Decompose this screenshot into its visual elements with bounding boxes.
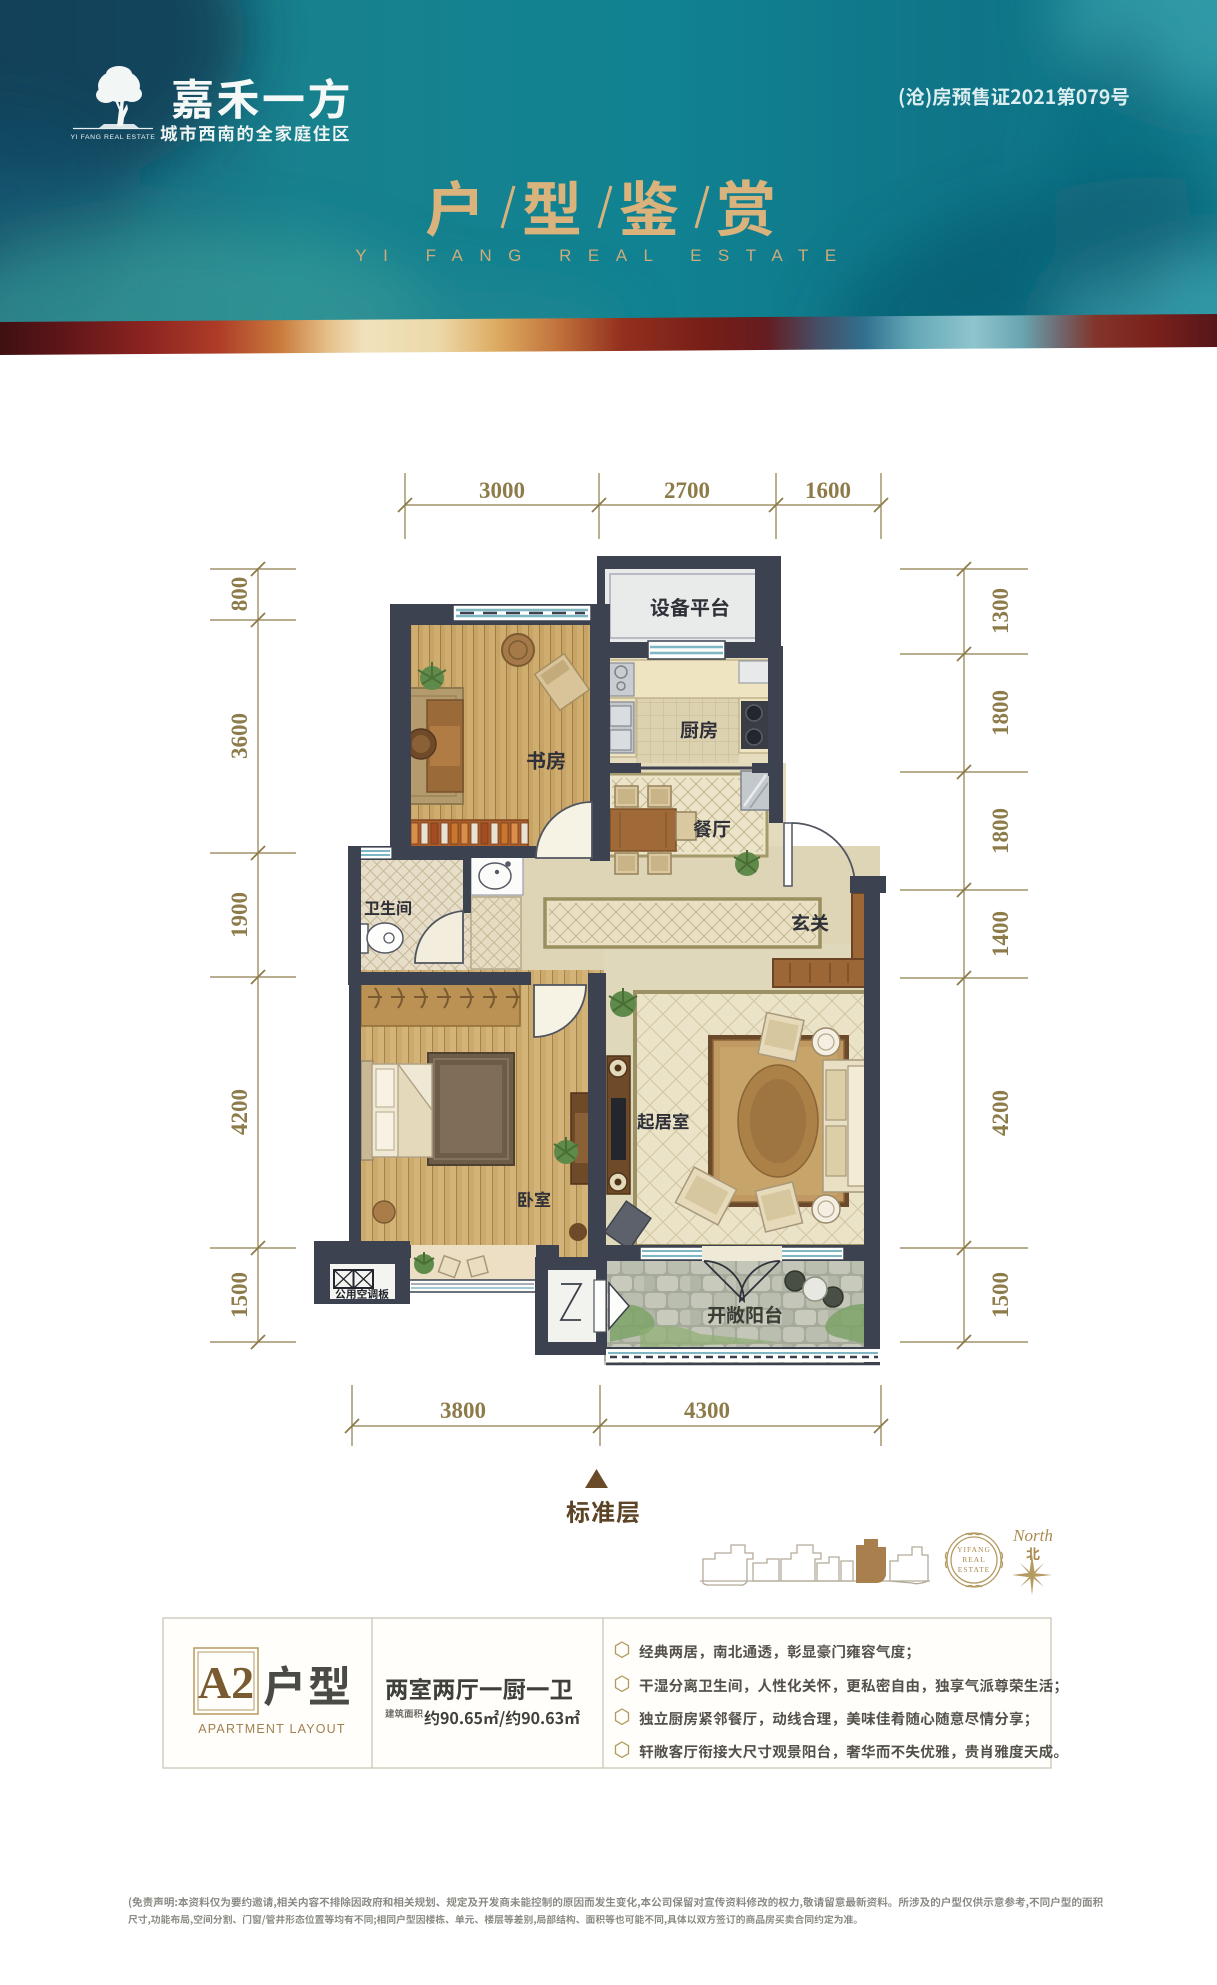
svg-text:North: North [1012,1526,1053,1545]
svg-text:YIFANG: YIFANG [957,1545,991,1554]
svg-text:4300: 4300 [684,1398,730,1423]
svg-text:1600: 1600 [805,478,851,503]
svg-text:YI FANG REAL ESTATE: YI FANG REAL ESTATE [355,246,852,265]
svg-text:4200: 4200 [988,1090,1013,1136]
svg-text:3000: 3000 [479,478,525,503]
svg-text:1300: 1300 [988,588,1013,634]
svg-text:APARTMENT LAYOUT: APARTMENT LAYOUT [198,1722,345,1736]
svg-text:1500: 1500 [227,1272,252,1318]
svg-text:REAL: REAL [962,1555,986,1564]
svg-text:1800: 1800 [988,808,1013,854]
svg-text:1400: 1400 [988,911,1013,957]
svg-text:3600: 3600 [227,713,252,759]
svg-text:1900: 1900 [227,892,252,938]
svg-text:1500: 1500 [988,1272,1013,1318]
svg-text:1800: 1800 [988,690,1013,736]
svg-text:A2: A2 [198,1657,254,1708]
svg-text:YI FANG REAL ESTATE: YI FANG REAL ESTATE [71,134,156,141]
svg-text:3800: 3800 [440,1398,486,1423]
svg-text:4200: 4200 [227,1089,252,1135]
svg-text:2700: 2700 [664,478,710,503]
svg-text:800: 800 [227,577,252,612]
svg-text:ESTATE: ESTATE [958,1565,990,1574]
